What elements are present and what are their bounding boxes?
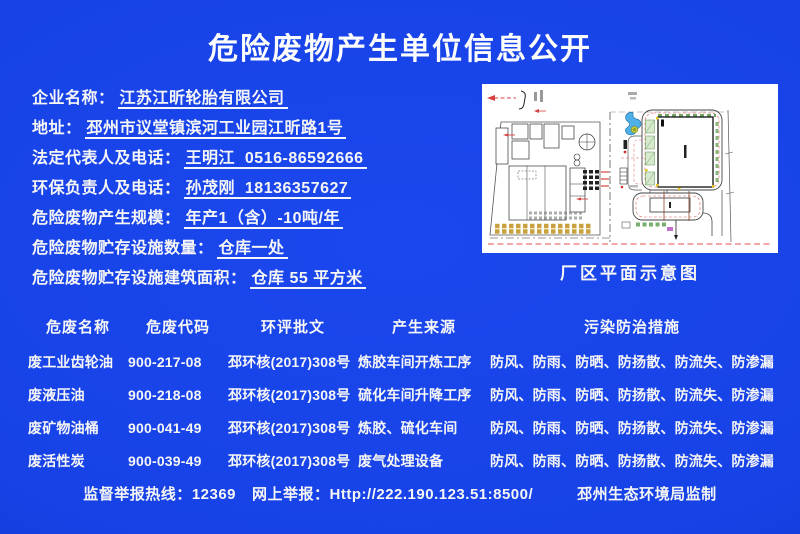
- info-field-value: 仓库一处: [217, 240, 288, 259]
- table-cell: 废矿物油桶: [28, 412, 128, 445]
- page-title: 危险废物产生单位信息公开: [0, 24, 800, 68]
- info-field-value: 江苏江昕轮胎有限公司: [118, 90, 288, 109]
- table-cell: 废活性炭: [28, 445, 128, 478]
- hotline-number: 12369: [192, 486, 236, 503]
- info-field-value: 邳州市议堂镇滨河工业园江昕路1号: [85, 120, 347, 139]
- info-field-label: 危险废物产生规模：: [32, 210, 181, 227]
- table-cell: 防风、防雨、防晒、防扬散、防流失、防渗漏: [490, 445, 774, 478]
- info-field-label: 危险废物贮存设施建筑面积：: [32, 270, 247, 287]
- info-field-env-officer: 环保负责人及电话：孙茂刚 18136357627: [32, 174, 367, 204]
- info-field-label: 危险废物贮存设施数量：: [32, 240, 214, 257]
- site-plan-drawing: [482, 84, 778, 253]
- waste-table: 危废名称 危废代码 环评批文 产生来源 污染防治措施 废工业齿轮油 900-21…: [28, 310, 774, 478]
- info-field-scale: 危险废物产生规模：年产1（含）-10吨/年: [32, 204, 367, 234]
- table-cell: 900-039-49: [128, 445, 228, 478]
- site-plan-image: [482, 84, 778, 253]
- info-list: 企业名称：江苏江昕轮胎有限公司 地址：邳州市议堂镇滨河工业园江昕路1号 法定代表…: [32, 84, 367, 294]
- table-cell: 硫化车间升降工序: [358, 379, 490, 412]
- table-cell: 邳环核(2017)308号: [228, 379, 358, 412]
- table-cell: 废气处理设备: [358, 445, 490, 478]
- info-field-value: 孙茂刚 18136357627: [184, 180, 352, 199]
- table-cell: 防风、防雨、防晒、防扬散、防流失、防渗漏: [490, 346, 774, 379]
- info-field-value: 仓库 55 平方米: [250, 270, 366, 289]
- notice-board: 危险废物产生单位信息公开 企业名称：江苏江昕轮胎有限公司 地址：邳州市议堂镇滨河…: [0, 0, 800, 534]
- report-web-url: Http://222.190.123.51:8500/: [330, 486, 534, 503]
- site-plan-caption: 厂区平面示意图: [482, 259, 778, 284]
- table-cell: 900-217-08: [128, 346, 228, 379]
- info-field-value: 年产1（含）-10吨/年: [184, 210, 343, 229]
- issuer: 邳州生态环境局监制: [577, 486, 717, 503]
- table-cell: 废液压油: [28, 379, 128, 412]
- footer: 监督举报热线：12369网上举报：Http://222.190.123.51:8…: [0, 483, 800, 504]
- table-header-waste-code: 危废代码: [128, 310, 228, 346]
- report-web-label: 网上举报：: [252, 486, 330, 503]
- table-cell: 废工业齿轮油: [28, 346, 128, 379]
- table-cell: 邳环核(2017)308号: [228, 412, 358, 445]
- table-header-eia-approval: 环评批文: [228, 310, 358, 346]
- table-cell: 炼胶车间开炼工序: [358, 346, 490, 379]
- info-field-company: 企业名称：江苏江昕轮胎有限公司: [32, 84, 367, 114]
- table-header-prevention: 污染防治措施: [490, 310, 774, 346]
- table-cell: 900-041-49: [128, 412, 228, 445]
- hotline-label: 监督举报热线：: [83, 486, 192, 503]
- table-cell: 炼胶、硫化车间: [358, 412, 490, 445]
- table-cell: 邳环核(2017)308号: [228, 445, 358, 478]
- info-field-label: 环保负责人及电话：: [32, 180, 181, 197]
- info-field-label: 法定代表人及电话：: [32, 150, 181, 167]
- info-field-label: 企业名称：: [32, 90, 115, 107]
- info-field-label: 地址：: [32, 120, 82, 137]
- table-header-waste-name: 危废名称: [28, 310, 128, 346]
- table-cell: 900-218-08: [128, 379, 228, 412]
- table-header-source: 产生来源: [358, 310, 490, 346]
- info-field-storage-count: 危险废物贮存设施数量：仓库一处: [32, 234, 367, 264]
- table-cell: 防风、防雨、防晒、防扬散、防流失、防渗漏: [490, 412, 774, 445]
- info-field-address: 地址：邳州市议堂镇滨河工业园江昕路1号: [32, 114, 367, 144]
- table-cell: 邳环核(2017)308号: [228, 346, 358, 379]
- info-field-legal-rep: 法定代表人及电话：王明江 0516-86592666: [32, 144, 367, 174]
- info-field-value: 王明江 0516-86592666: [184, 150, 367, 169]
- info-field-storage-area: 危险废物贮存设施建筑面积：仓库 55 平方米: [32, 264, 367, 294]
- table-cell: 防风、防雨、防晒、防扬散、防流失、防渗漏: [490, 379, 774, 412]
